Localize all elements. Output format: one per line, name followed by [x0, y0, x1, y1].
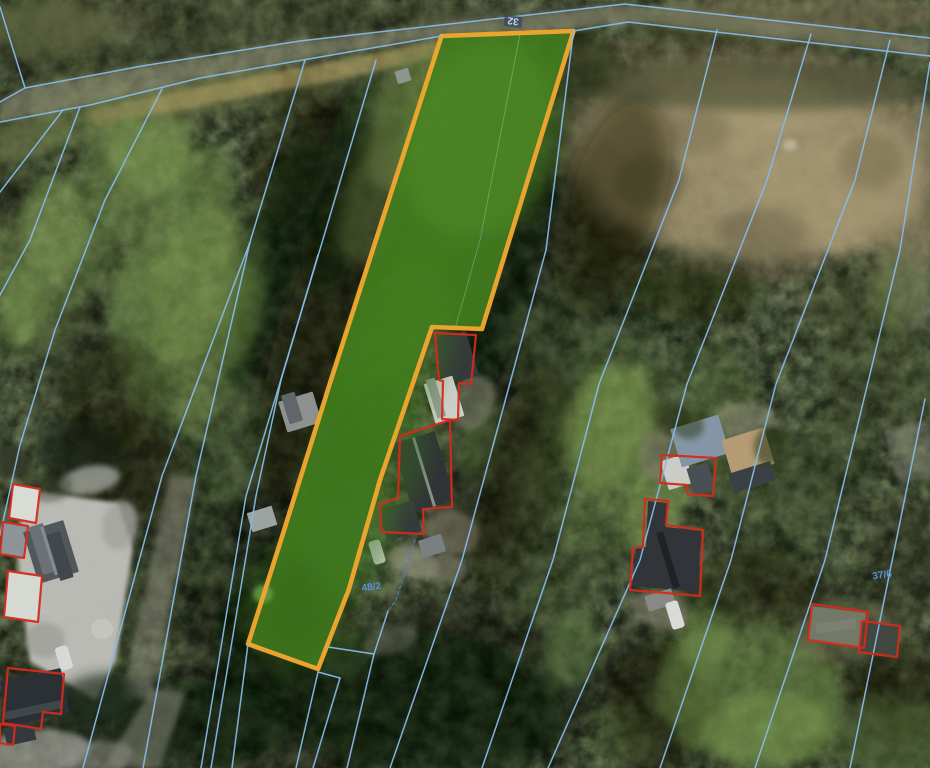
svg-text:32: 32 [507, 14, 520, 26]
